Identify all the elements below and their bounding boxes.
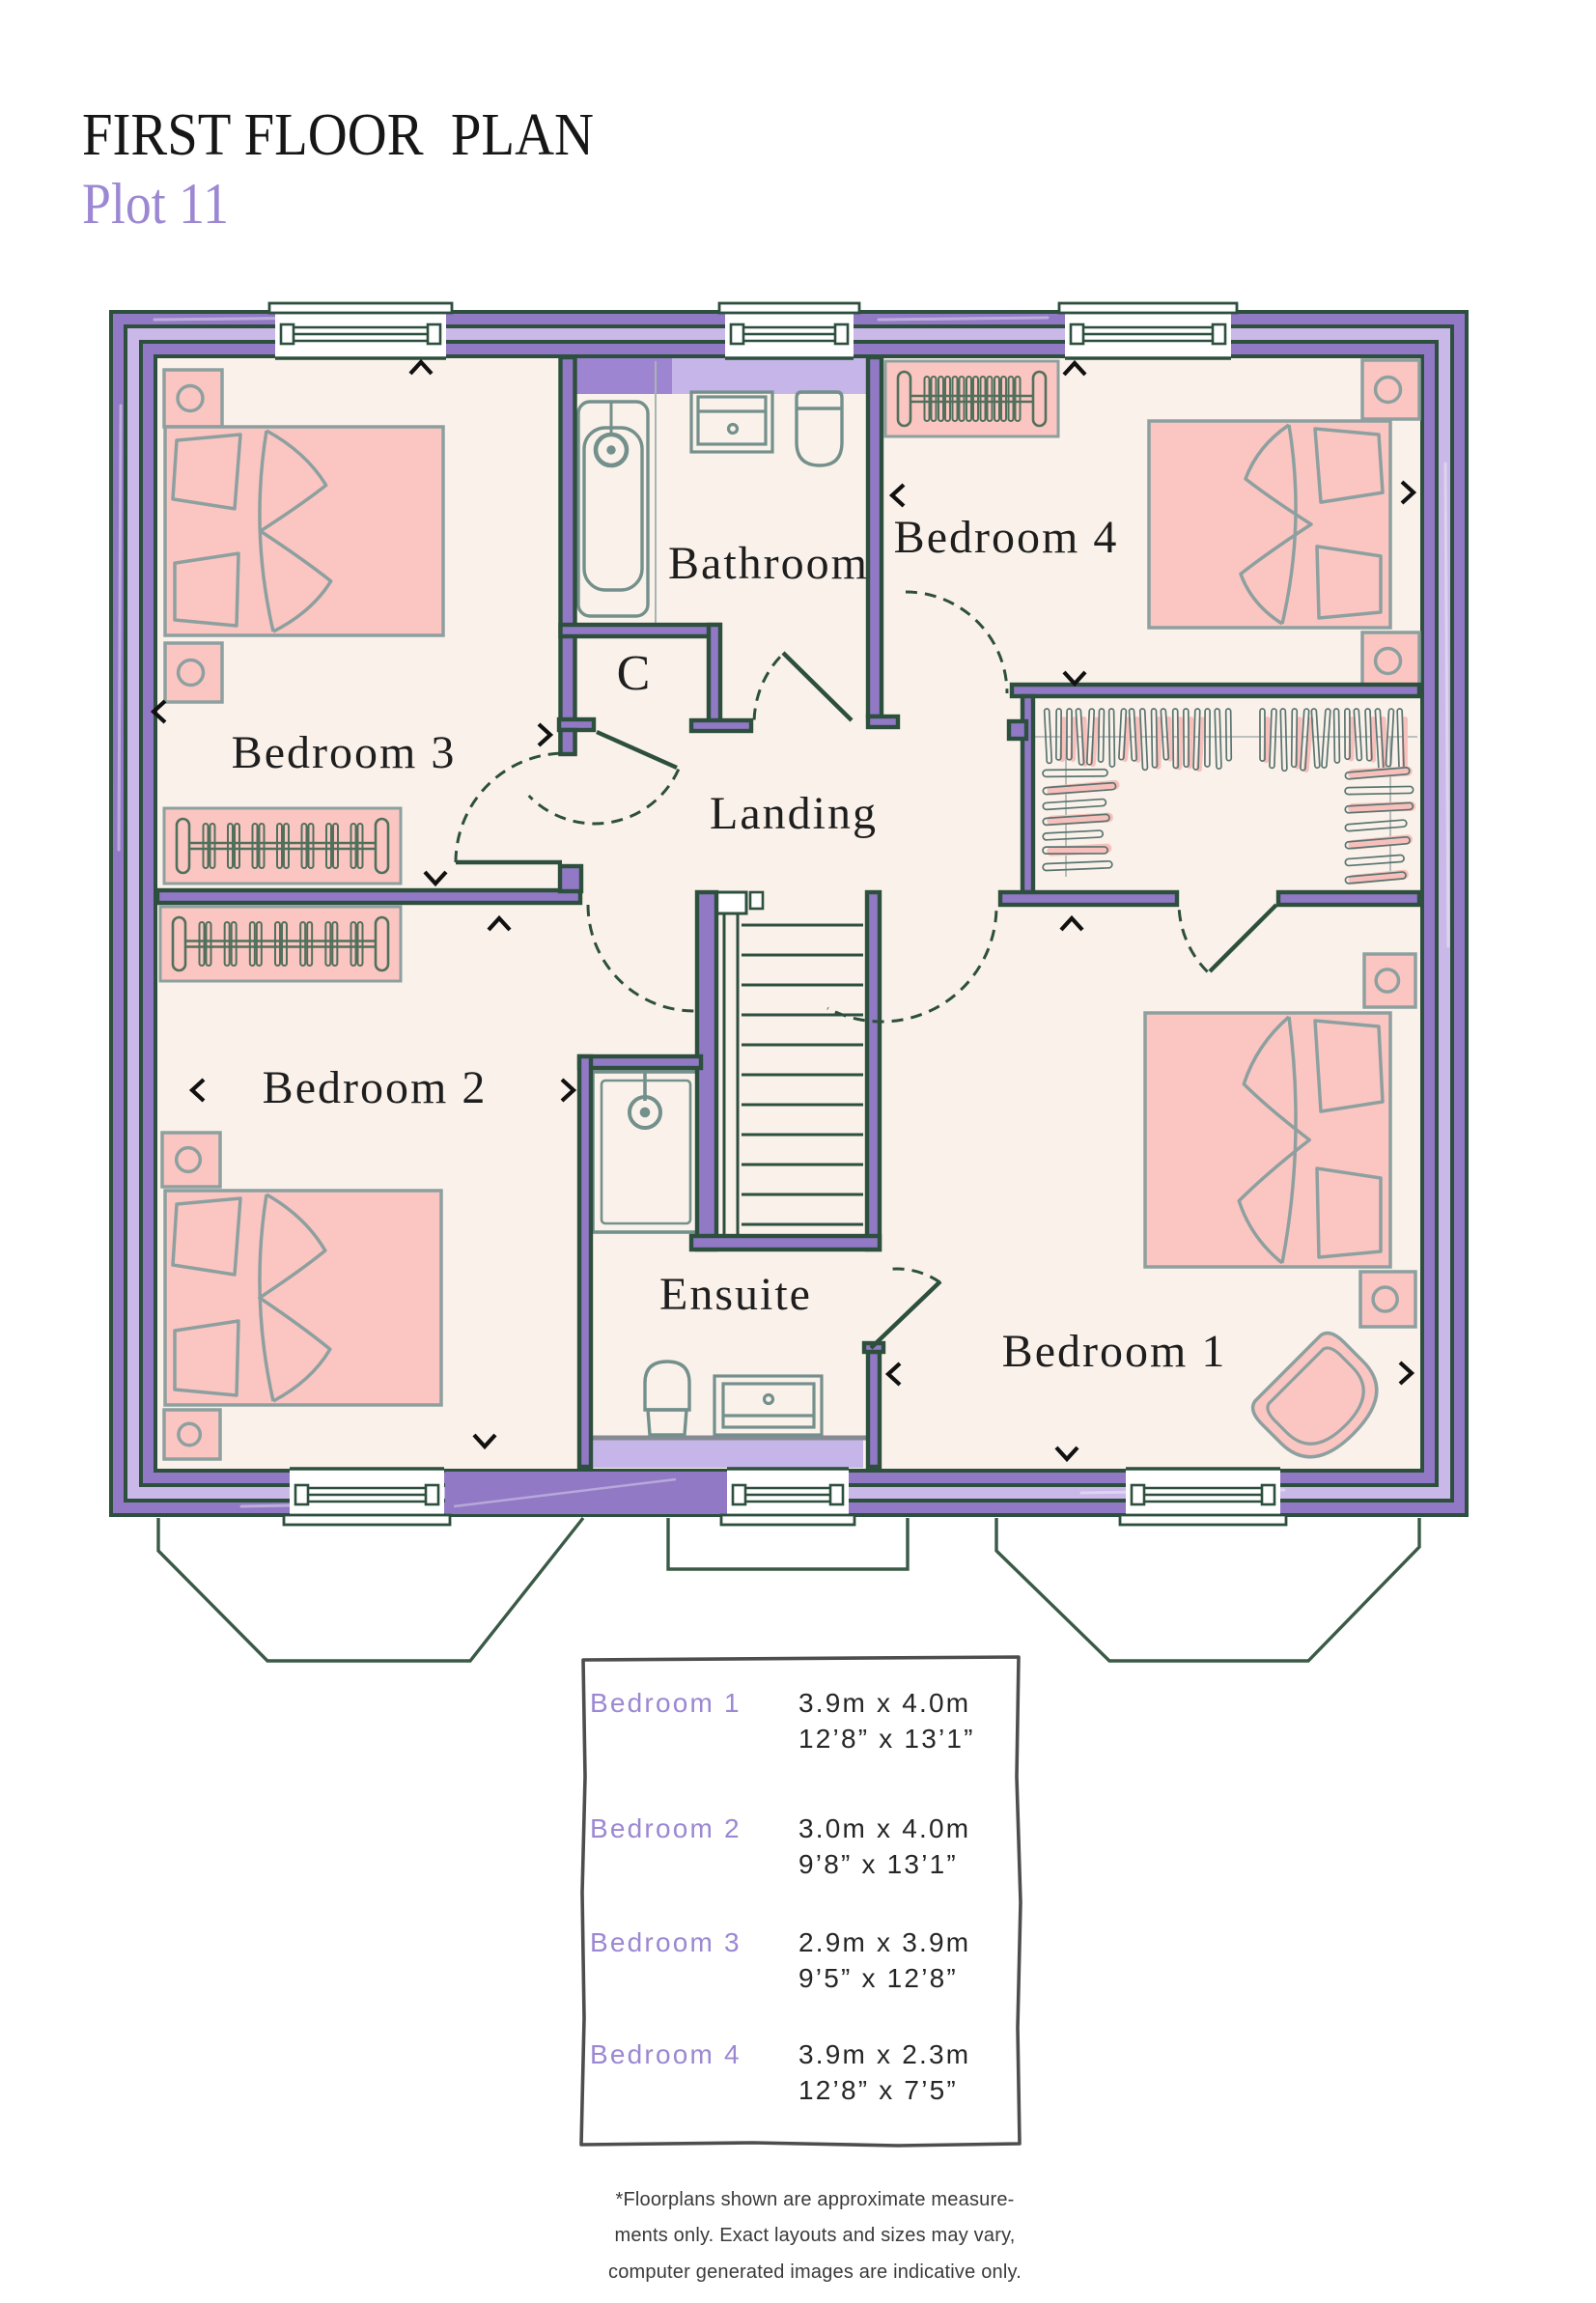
svg-text:12’8” x 13’1”: 12’8” x 13’1”	[798, 1724, 975, 1754]
svg-text:9’8” x 13’1”: 9’8” x 13’1”	[798, 1849, 958, 1879]
svg-text:Bedroom 3: Bedroom 3	[590, 1927, 742, 1957]
svg-text:*Floorplans shown are approxim: *Floorplans shown are approximate measur…	[615, 2189, 1014, 2210]
svg-text:3.9m x 2.3m: 3.9m x 2.3m	[798, 2039, 970, 2069]
svg-text:12’8” x 7’5”: 12’8” x 7’5”	[798, 2075, 958, 2105]
svg-text:2.9m x 3.9m: 2.9m x 3.9m	[798, 1927, 970, 1957]
svg-text:Landing: Landing	[710, 788, 878, 839]
svg-text:computer generated images are: computer generated images are indicative…	[608, 2261, 1022, 2283]
svg-text:Bedroom 1: Bedroom 1	[1002, 1326, 1227, 1377]
svg-text:ments only. Exact layouts and: ments only. Exact layouts and sizes may …	[614, 2225, 1015, 2246]
svg-text:9’5” x 12’8”: 9’5” x 12’8”	[798, 1963, 958, 1993]
svg-text:Bedroom 2: Bedroom 2	[263, 1062, 488, 1113]
svg-text:FIRST FLOOR PLAN: FIRST FLOOR PLAN	[82, 102, 594, 168]
svg-text:C: C	[617, 646, 651, 701]
svg-text:Bedroom 3: Bedroom 3	[232, 727, 457, 778]
svg-text:3.0m x 4.0m: 3.0m x 4.0m	[798, 1813, 970, 1843]
svg-text:Bathroom: Bathroom	[668, 538, 869, 589]
svg-text:Plot 11: Plot 11	[82, 172, 229, 236]
svg-text:Bedroom 4: Bedroom 4	[894, 512, 1119, 563]
svg-text:Bedroom 1: Bedroom 1	[590, 1688, 742, 1718]
svg-text:Ensuite: Ensuite	[659, 1269, 812, 1320]
svg-text:Bedroom 4: Bedroom 4	[590, 2039, 742, 2069]
svg-text:3.9m x 4.0m: 3.9m x 4.0m	[798, 1688, 970, 1718]
svg-text:Bedroom 2: Bedroom 2	[590, 1813, 742, 1843]
